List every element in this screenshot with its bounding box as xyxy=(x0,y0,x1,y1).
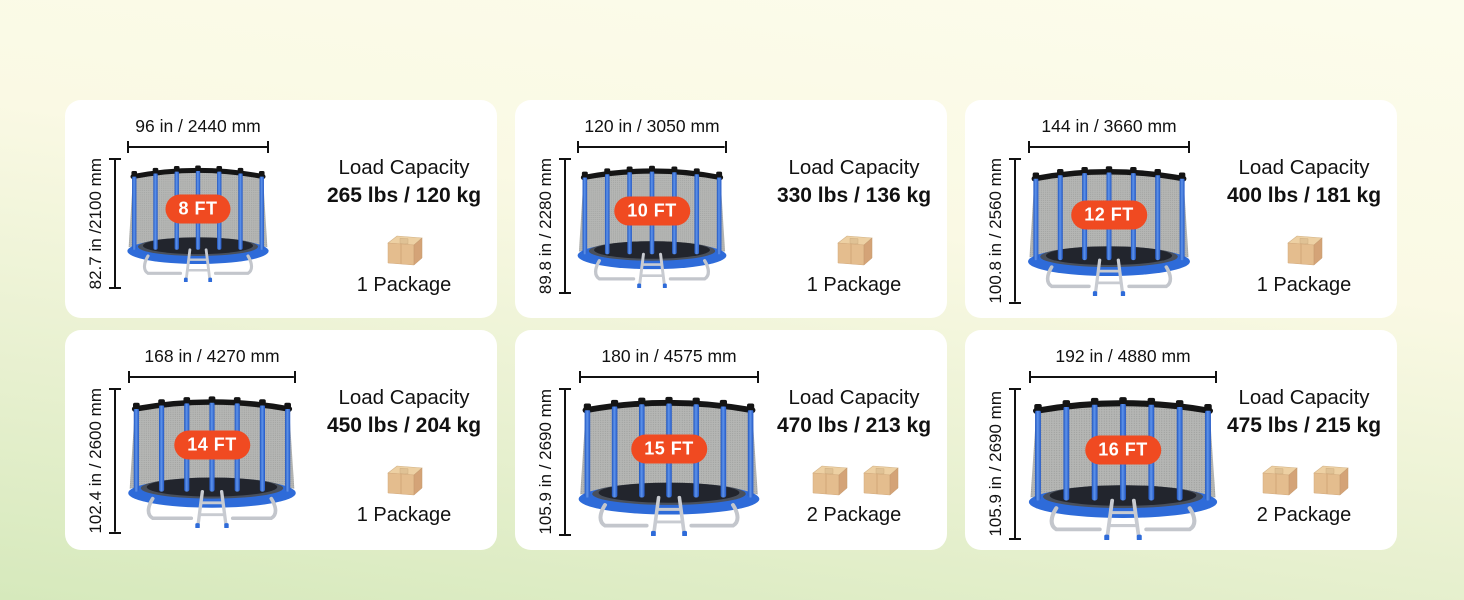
package-box-icon xyxy=(382,462,426,500)
load-capacity-label: Load Capacity xyxy=(1238,155,1369,182)
card-info: Load Capacity 470 lbs / 213 kg xyxy=(771,330,937,550)
height-dimension: 100.8 in / 2560 mm xyxy=(975,158,1023,304)
package-boxes xyxy=(1257,462,1352,500)
height-dimension: 105.9 in / 2690 mm xyxy=(525,388,573,536)
load-capacity-value: 475 lbs / 215 kg xyxy=(1227,412,1381,439)
load-capacity-label: Load Capacity xyxy=(788,155,919,182)
trampoline-image: 16 FT xyxy=(1023,388,1223,540)
size-badge: 15 FT xyxy=(631,434,707,463)
trampoline-card: 96 in / 2440 mm 82.7 in /2100 mm xyxy=(65,100,497,318)
load-capacity-value: 470 lbs / 213 kg xyxy=(777,412,931,439)
package-boxes xyxy=(382,462,426,500)
trampoline-card: 192 in / 4880 mm 105.9 in / 2690 mm xyxy=(965,330,1397,550)
package-count-label: 1 Package xyxy=(1257,274,1352,297)
height-dimension-label: 82.7 in /2100 mm xyxy=(87,158,104,289)
cards-grid: 96 in / 2440 mm 82.7 in /2100 mm xyxy=(65,100,1397,550)
package-boxes xyxy=(382,232,426,270)
width-dimension-line xyxy=(128,371,296,383)
load-capacity-label: Load Capacity xyxy=(788,385,919,412)
package-count-label: 2 Package xyxy=(807,504,902,527)
height-dimension-label: 105.9 in / 2690 mm xyxy=(987,391,1004,537)
card-info: Load Capacity 450 lbs / 204 kg xyxy=(321,330,487,550)
width-dimension-line xyxy=(579,371,760,383)
load-capacity-value: 400 lbs / 181 kg xyxy=(1227,182,1381,209)
size-badge: 8 FT xyxy=(165,194,230,223)
load-capacity-label: Load Capacity xyxy=(338,385,469,412)
package-count-label: 1 Package xyxy=(807,274,902,297)
height-dimension-line xyxy=(109,388,121,534)
trampoline-illustration: 144 in / 3660 mm 100.8 in / 2560 mm xyxy=(975,116,1195,304)
height-dimension-line xyxy=(109,158,121,289)
width-dimension-label: 180 in / 4575 mm xyxy=(573,346,765,367)
package-boxes xyxy=(1282,232,1326,270)
height-dimension-label: 100.8 in / 2560 mm xyxy=(987,158,1004,304)
trampoline-illustration: 168 in / 4270 mm 102.4 in / 2600 mm xyxy=(75,346,301,534)
trampoline-image: 10 FT xyxy=(573,158,731,288)
height-dimension: 82.7 in /2100 mm xyxy=(75,158,123,289)
package-count-label: 2 Package xyxy=(1257,504,1352,527)
size-badge: 16 FT xyxy=(1085,436,1161,465)
width-dimension-label: 144 in / 3660 mm xyxy=(1023,116,1195,137)
package-box-icon xyxy=(832,232,876,270)
trampoline-image: 15 FT xyxy=(573,388,765,536)
package-boxes xyxy=(807,462,902,500)
card-info: Load Capacity 475 lbs / 215 kg xyxy=(1221,330,1387,550)
trampoline-image: 14 FT xyxy=(123,388,301,528)
trampoline-card: 144 in / 3660 mm 100.8 in / 2560 mm xyxy=(965,100,1397,318)
height-dimension: 105.9 in / 2690 mm xyxy=(975,388,1023,540)
trampoline-image: 12 FT xyxy=(1023,158,1195,296)
height-dimension-label: 105.9 in / 2690 mm xyxy=(537,389,554,535)
package-count-label: 1 Package xyxy=(357,504,452,527)
package-boxes xyxy=(832,232,876,270)
trampoline-illustration: 120 in / 3050 mm 89.8 in / 2280 mm xyxy=(525,116,731,294)
width-dimension-line xyxy=(577,141,726,153)
height-dimension-line xyxy=(1009,388,1021,540)
height-dimension-line xyxy=(559,388,571,536)
width-dimension-label: 120 in / 3050 mm xyxy=(573,116,731,137)
width-dimension-line xyxy=(1029,371,1217,383)
package-box-icon xyxy=(807,462,851,500)
load-capacity-label: Load Capacity xyxy=(1238,385,1369,412)
card-info: Load Capacity 330 lbs / 136 kg xyxy=(771,100,937,318)
trampoline-illustration: 180 in / 4575 mm 105.9 in / 2690 mm xyxy=(525,346,765,536)
load-capacity-value: 450 lbs / 204 kg xyxy=(327,412,481,439)
size-badge: 10 FT xyxy=(614,197,690,226)
package-count-label: 1 Package xyxy=(357,274,452,297)
trampoline-card: 168 in / 4270 mm 102.4 in / 2600 mm xyxy=(65,330,497,550)
height-dimension-label: 102.4 in / 2600 mm xyxy=(87,388,104,534)
card-info: Load Capacity 265 lbs / 120 kg xyxy=(321,100,487,318)
load-capacity-value: 330 lbs / 136 kg xyxy=(777,182,931,209)
size-badge: 12 FT xyxy=(1071,200,1147,229)
height-dimension-line xyxy=(559,158,571,294)
height-dimension: 89.8 in / 2280 mm xyxy=(525,158,573,294)
height-dimension-label: 89.8 in / 2280 mm xyxy=(537,158,554,294)
package-box-icon xyxy=(382,232,426,270)
width-dimension-line xyxy=(1028,141,1190,153)
trampoline-image: 8 FT xyxy=(123,158,273,282)
load-capacity-value: 265 lbs / 120 kg xyxy=(327,182,481,209)
package-box-icon xyxy=(858,462,902,500)
package-box-icon xyxy=(1282,232,1326,270)
width-dimension-label: 96 in / 2440 mm xyxy=(123,116,273,137)
height-dimension: 102.4 in / 2600 mm xyxy=(75,388,123,534)
width-dimension-label: 168 in / 4270 mm xyxy=(123,346,301,367)
package-box-icon xyxy=(1257,462,1301,500)
width-dimension-line xyxy=(127,141,269,153)
trampoline-card: 120 in / 3050 mm 89.8 in / 2280 mm xyxy=(515,100,947,318)
size-badge: 14 FT xyxy=(174,431,250,460)
trampoline-card: 180 in / 4575 mm 105.9 in / 2690 mm xyxy=(515,330,947,550)
height-dimension-line xyxy=(1009,158,1021,304)
card-info: Load Capacity 400 lbs / 181 kg xyxy=(1221,100,1387,318)
width-dimension-label: 192 in / 4880 mm xyxy=(1023,346,1223,367)
package-box-icon xyxy=(1308,462,1352,500)
trampoline-illustration: 96 in / 2440 mm 82.7 in /2100 mm xyxy=(75,116,273,289)
load-capacity-label: Load Capacity xyxy=(338,155,469,182)
trampoline-illustration: 192 in / 4880 mm 105.9 in / 2690 mm xyxy=(975,346,1223,540)
